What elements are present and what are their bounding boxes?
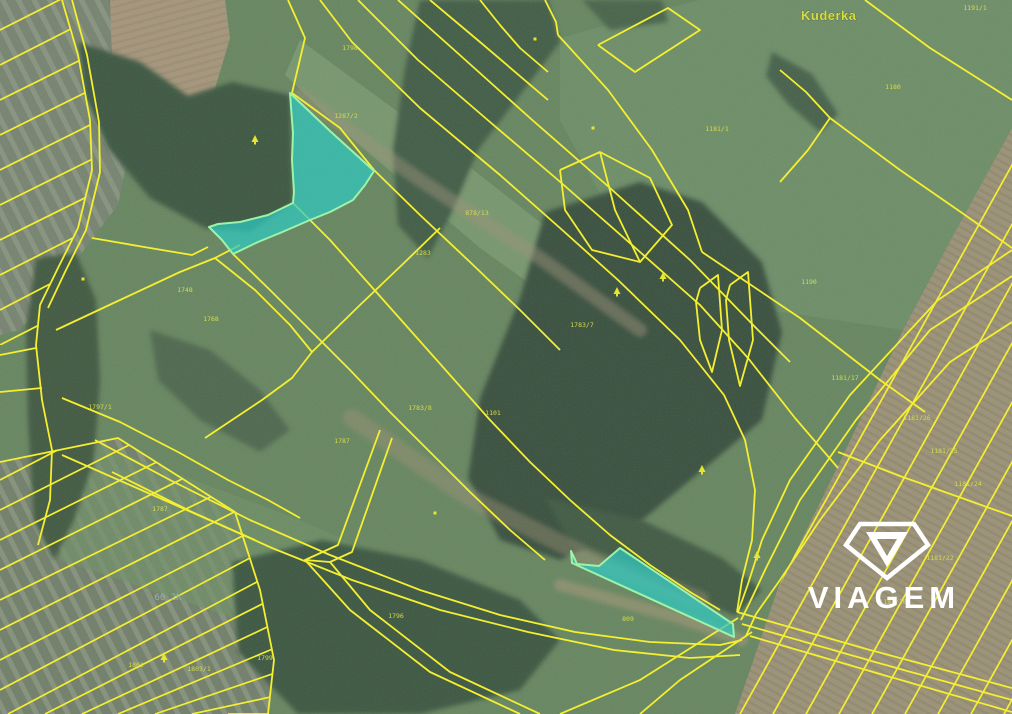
parcel-number-label: 1796	[388, 612, 404, 620]
parcel-number-label: 1787	[334, 437, 350, 445]
parcel-number-label: 1181/1	[705, 125, 729, 133]
parcel-number-label: 1190	[801, 278, 817, 286]
parcel-number-label: 1783/7	[570, 321, 594, 329]
parcel-number-label: 1801	[128, 661, 144, 669]
parcel-number-label: 1181/24	[954, 480, 981, 488]
parcel-number-label: 1283	[415, 249, 431, 257]
parcel-number-label: 1797/1	[88, 403, 112, 411]
parcel-number-label: 1768	[203, 315, 219, 323]
parcel-number-label: 1799	[257, 654, 273, 662]
parcel-number-label: 1783/8	[408, 404, 432, 412]
place-label: Kuderka	[801, 8, 857, 23]
parcel-number-label: 809	[622, 615, 634, 623]
parcel-number-label: 1798	[342, 44, 358, 52]
parcel-number-label: 1181/17	[831, 374, 858, 382]
parcel-number-label: 1181/26	[903, 414, 930, 422]
cadastral-map[interactable]: 1191/111801181/1119017981287/21283878/13…	[0, 0, 1012, 714]
map-viewport[interactable]: 1191/111801181/1119017981287/21283878/13…	[0, 0, 1012, 714]
parcel-number-label: 1803/1	[187, 665, 211, 673]
parcel-number-label: 1748	[177, 286, 193, 294]
viagem-wordmark: VIAGEM	[808, 580, 960, 615]
parcel-number-label: 1181/22	[926, 554, 953, 562]
parcel-number-label: 1180	[885, 83, 901, 91]
parcel-number-label: 1191/1	[963, 4, 987, 12]
parcel-number-label: 878/13	[465, 209, 489, 217]
boundary-point-dot	[82, 278, 85, 281]
boundary-point-dot	[592, 127, 595, 130]
boundary-point-dot	[534, 38, 537, 41]
parcel-number-label: 60 2K	[154, 593, 182, 603]
parcel-number-label: 1287/2	[334, 112, 358, 120]
parcel-number-label: 1181/25	[930, 447, 957, 455]
parcel-number-label: 1101	[485, 409, 501, 417]
parcel-number-label: 1787	[152, 505, 168, 513]
boundary-point-dot	[434, 512, 437, 515]
